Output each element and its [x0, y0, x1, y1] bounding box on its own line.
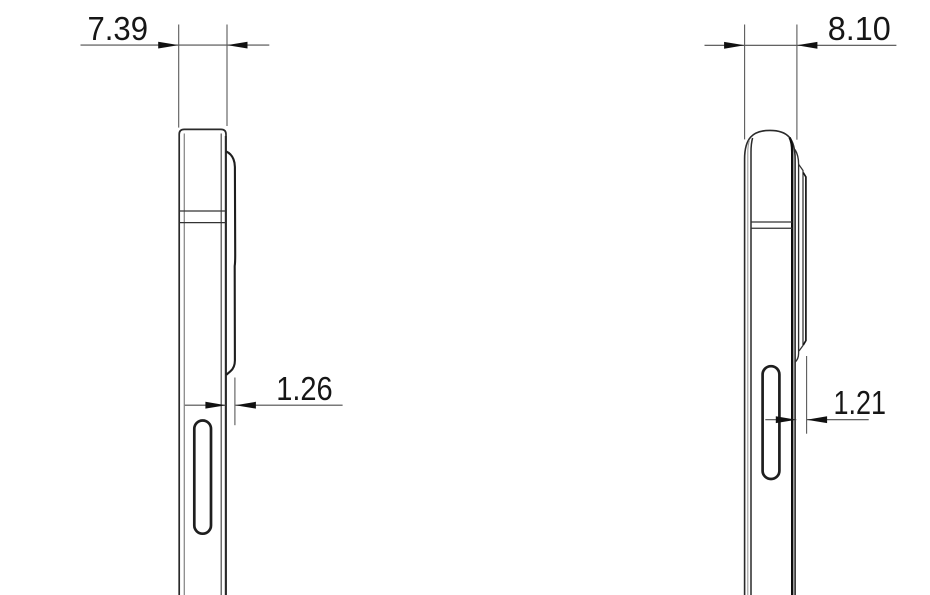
- svg-text:1.26: 1.26: [276, 370, 333, 407]
- svg-text:8.10: 8.10: [828, 10, 891, 47]
- svg-text:7.39: 7.39: [88, 10, 149, 47]
- svg-text:1.21: 1.21: [834, 384, 887, 421]
